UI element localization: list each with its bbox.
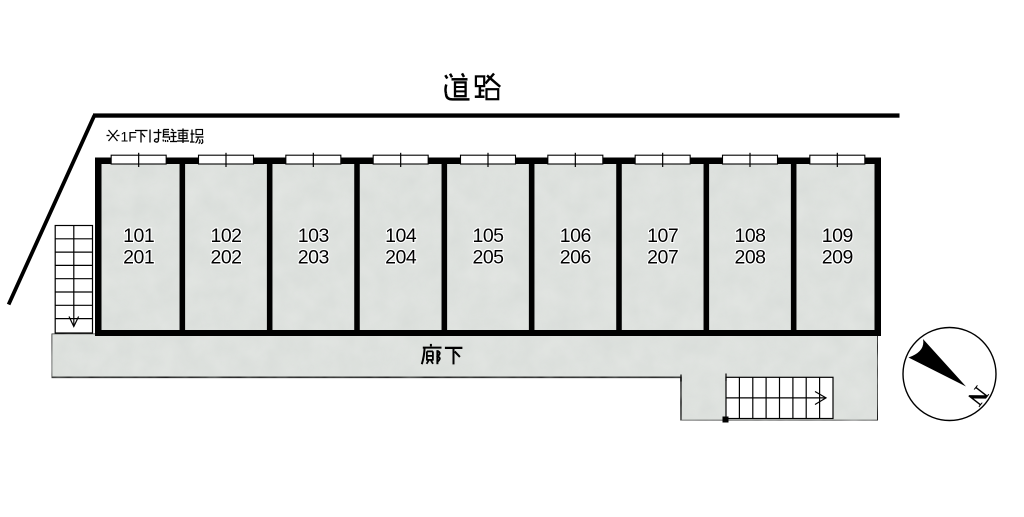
svg-text:106: 106 <box>560 225 591 247</box>
svg-text:103: 103 <box>298 225 329 247</box>
svg-text:101: 101 <box>123 225 154 247</box>
svg-text:202: 202 <box>210 247 241 269</box>
svg-text:1F: 1F <box>121 129 137 145</box>
svg-text:208: 208 <box>734 247 765 269</box>
svg-text:203: 203 <box>298 247 329 269</box>
svg-text:209: 209 <box>822 247 853 269</box>
svg-text:105: 105 <box>472 225 504 247</box>
svg-text:207: 207 <box>647 247 678 269</box>
svg-text:107: 107 <box>647 225 678 247</box>
svg-text:109: 109 <box>822 225 853 247</box>
svg-text:206: 206 <box>560 247 591 269</box>
svg-text:108: 108 <box>734 225 765 247</box>
svg-text:205: 205 <box>472 247 504 269</box>
svg-text:104: 104 <box>385 225 417 247</box>
svg-text:201: 201 <box>123 247 154 269</box>
svg-text:204: 204 <box>385 247 417 269</box>
svg-text:102: 102 <box>210 225 241 247</box>
